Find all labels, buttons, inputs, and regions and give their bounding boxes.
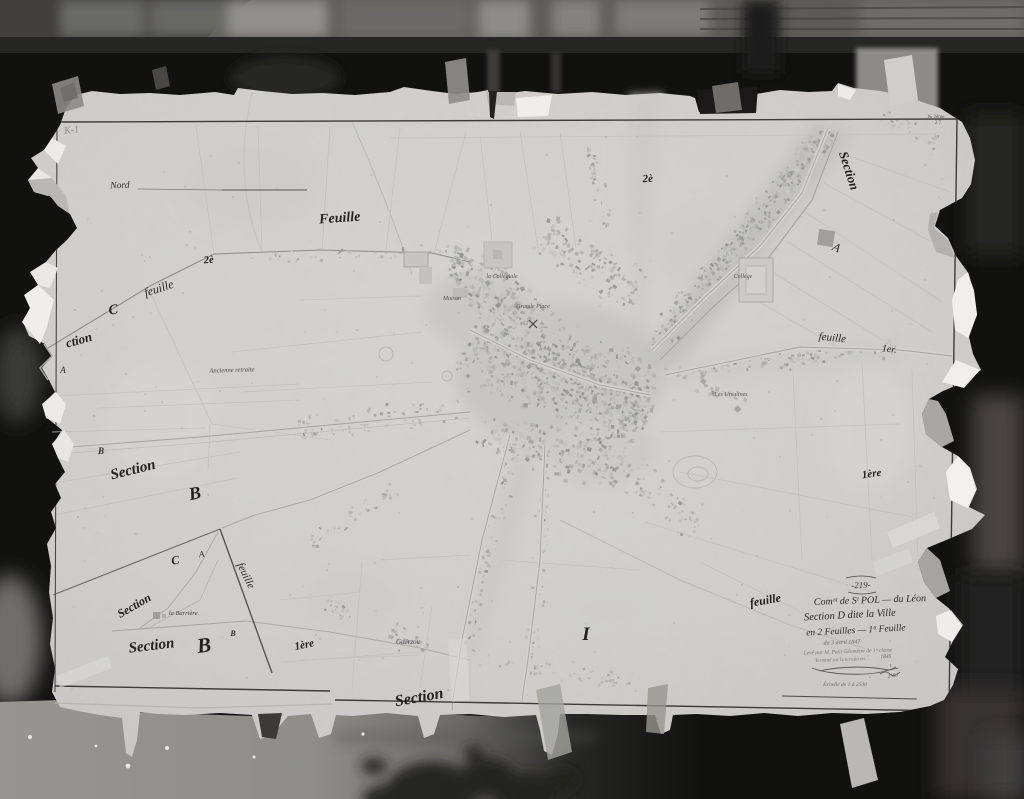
svg-text:Maison: Maison — [442, 296, 461, 302]
svg-text:Échelle de 1 à 2500: Échelle de 1 à 2500 — [822, 680, 867, 688]
svg-text:№ 2ème: № 2ème — [928, 114, 946, 120]
svg-text:Guérzou: Guérzou — [396, 638, 421, 646]
svg-text:Grande Place: Grande Place — [516, 304, 550, 310]
svg-text:la Barrière.: la Barrière. — [169, 610, 200, 617]
svg-text:Nord: Nord — [109, 181, 130, 192]
svg-text:Collége: Collége — [734, 274, 753, 280]
svg-text:2 7: 2 7 — [935, 121, 942, 126]
svg-text:du 3 avril 1847: du 3 avril 1847 — [823, 638, 861, 646]
svg-text:B: B — [97, 446, 104, 456]
svg-text:K-1: K-1 — [62, 124, 79, 137]
svg-text:2è: 2è — [202, 255, 214, 267]
svg-text:-219-: -219- — [851, 580, 871, 591]
svg-text:2è: 2è — [641, 173, 653, 186]
svg-text:B: B — [229, 629, 236, 638]
svg-text:1er.: 1er. — [881, 343, 897, 355]
svg-text:Feuille: Feuille — [318, 210, 361, 228]
svg-text:Les Ursulines: Les Ursulines — [713, 392, 748, 398]
svg-text:la Collégiale: la Collégiale — [486, 274, 518, 280]
svg-text:I: I — [581, 624, 590, 645]
svg-text:1845: 1845 — [880, 653, 891, 660]
svg-text:A: A — [59, 365, 66, 375]
